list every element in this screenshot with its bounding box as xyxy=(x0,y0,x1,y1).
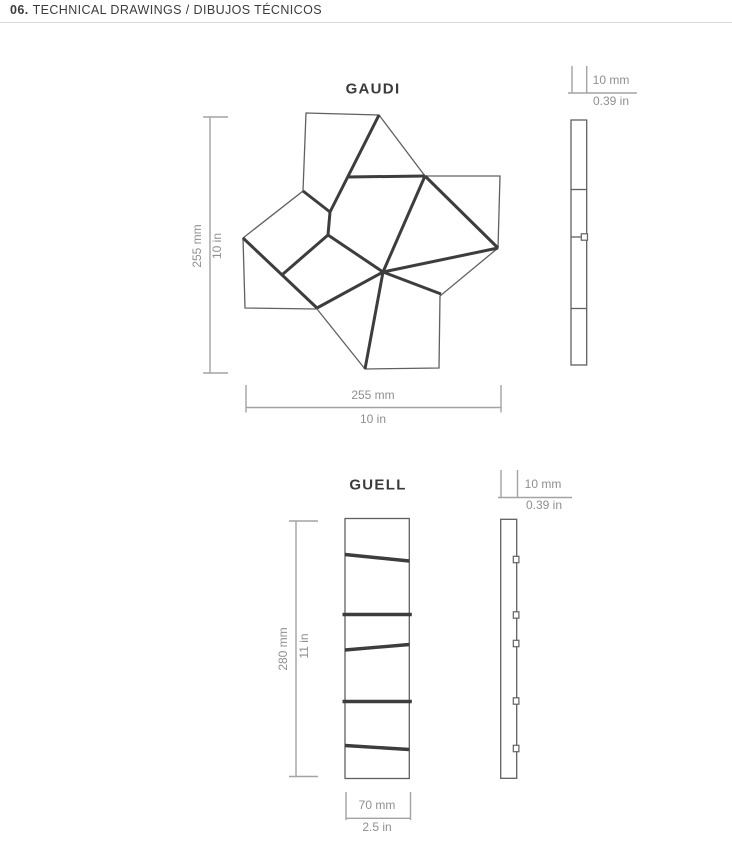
guell-side-view xyxy=(501,519,519,778)
guell-height-in-label: 11 in xyxy=(297,633,311,658)
guell-mount-clip xyxy=(513,640,519,646)
guell-thickness-in-label: 0.39 in xyxy=(526,498,562,512)
gaudi-width-in-label: 10 in xyxy=(360,412,386,426)
gaudi-width-mm-label: 255 mm xyxy=(351,388,394,402)
guell-mount-clip xyxy=(513,698,519,704)
drawings-canvas xyxy=(0,0,732,855)
gaudi-front-view xyxy=(243,113,500,369)
guell-mount-clip xyxy=(513,612,519,618)
guell-mount-clip xyxy=(513,556,519,562)
gaudi-mount-clip xyxy=(581,234,587,240)
gaudi-side-view xyxy=(571,120,588,365)
guell-front-view xyxy=(343,519,412,779)
gaudi-title: GAUDI xyxy=(346,81,401,98)
gaudi-facet-lines xyxy=(243,115,498,369)
gaudi-height-in-label: 10 in xyxy=(210,233,224,259)
guell-height-mm-label: 280 mm xyxy=(276,627,290,670)
guell-width-mm-label: 70 mm xyxy=(359,798,396,812)
guell-thickness-mm-label: 10 mm xyxy=(525,477,562,491)
guell-mount-clip xyxy=(513,745,519,751)
guell-title: GUELL xyxy=(349,477,406,494)
technical-drawings-page: 06.TECHNICAL DRAWINGS / DIBUJOS TÉCNICOS xyxy=(0,0,732,855)
gaudi-thickness-in-label: 0.39 in xyxy=(593,94,629,108)
guell-slat-lines xyxy=(343,555,412,750)
gaudi-thickness-mm-label: 10 mm xyxy=(593,73,630,87)
guell-width-in-label: 2.5 in xyxy=(362,820,391,834)
gaudi-height-mm-label: 255 mm xyxy=(190,224,204,267)
